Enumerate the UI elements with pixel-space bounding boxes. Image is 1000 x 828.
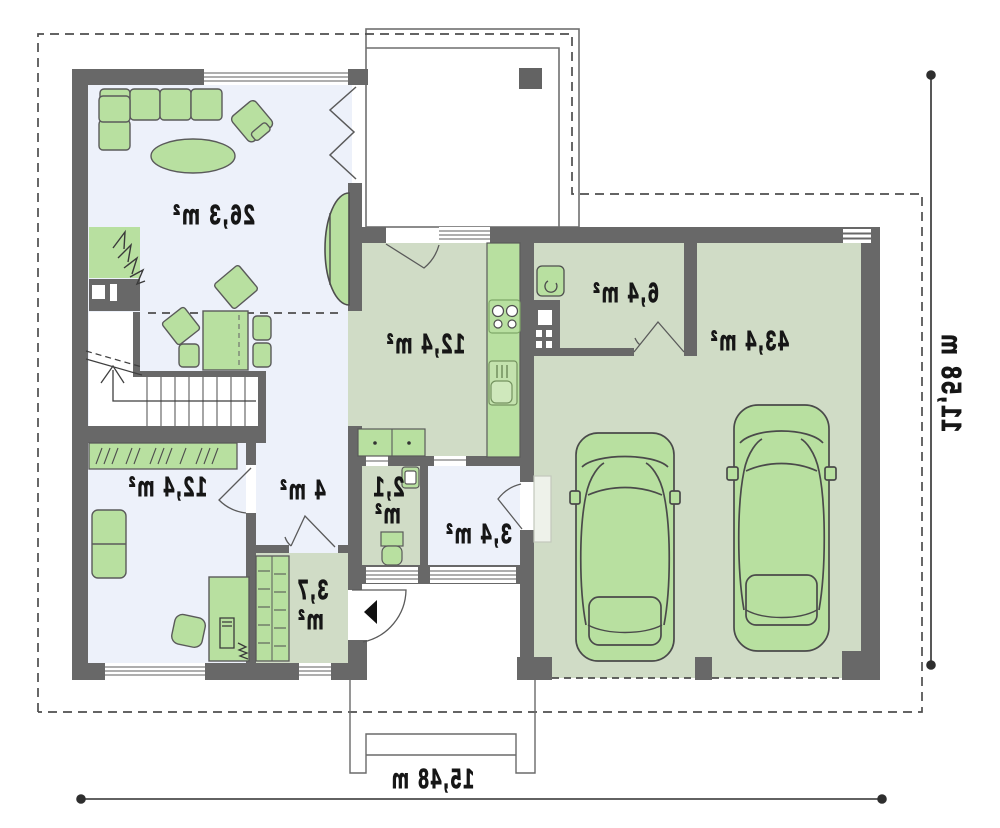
svg-text:12,4 m²: 12,4 m² <box>385 328 465 360</box>
svg-text:43,4 m²: 43,4 m² <box>709 325 789 357</box>
svg-text:11,58 m: 11,58 m <box>935 332 966 432</box>
svg-text:6,4 m²: 6,4 m² <box>591 277 658 309</box>
svg-text:4 m²: 4 m² <box>278 474 325 506</box>
svg-text:m²: m² <box>296 604 323 636</box>
svg-text:3,4 m²: 3,4 m² <box>444 518 511 550</box>
svg-text:12,4 m²: 12,4 m² <box>127 471 207 503</box>
svg-text:15,48 m: 15,48 m <box>390 763 474 795</box>
svg-text:26,3 m²: 26,3 m² <box>171 200 254 231</box>
svg-text:m²: m² <box>373 498 400 530</box>
svg-text:3,7: 3,7 <box>296 574 329 606</box>
